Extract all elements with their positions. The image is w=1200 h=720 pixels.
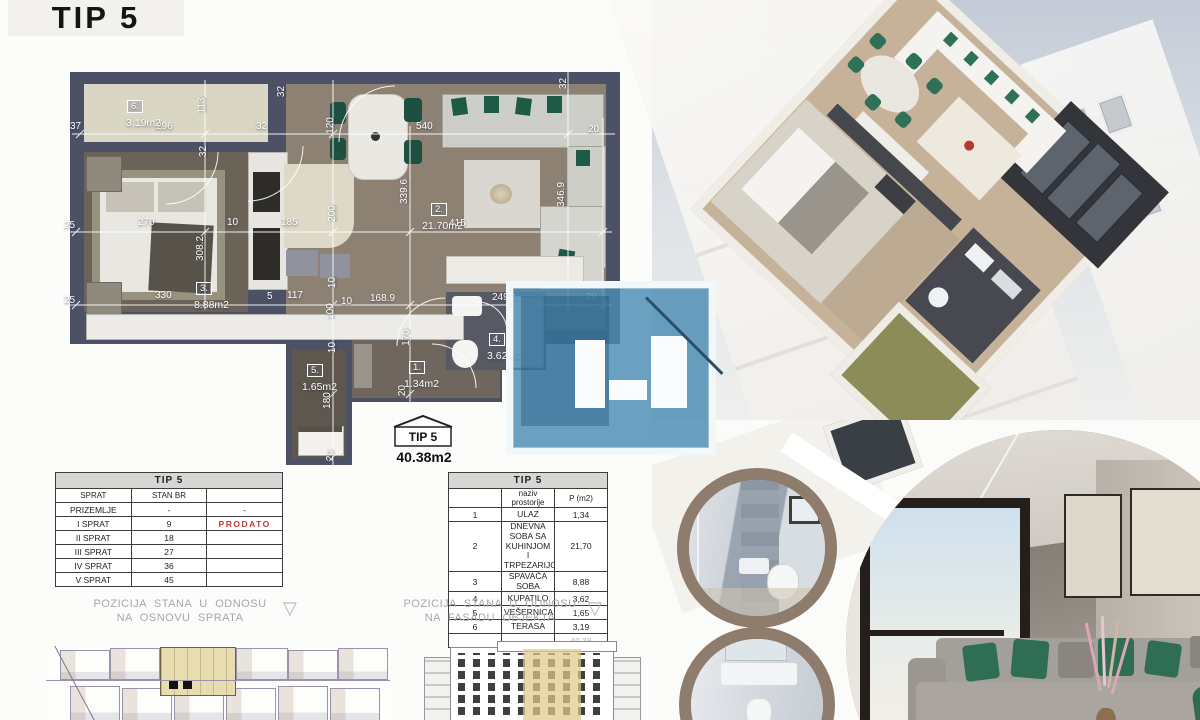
dim-label: 20	[325, 450, 336, 461]
dim-label: 32	[276, 86, 287, 97]
mirror	[725, 635, 787, 661]
page-title: TIP 5	[8, 0, 184, 36]
highlighted-unit	[160, 647, 236, 696]
availability-table: TIP 5 SPRAT STAN BR PRIZEMLJE-- I SPRAT9…	[55, 472, 283, 587]
dim-label: 10	[327, 277, 338, 288]
gray-pillow	[1058, 642, 1094, 678]
dim-label: 339.6	[399, 179, 410, 204]
dim-label: 185	[281, 217, 298, 228]
green-pillow	[1144, 640, 1182, 678]
dim-label: 10	[327, 342, 338, 353]
dim-label: 100	[325, 303, 336, 320]
sold-badge: PRODATO	[207, 517, 283, 531]
table-row: 3SPAVAĆA SOBA8,88	[449, 571, 608, 592]
dim-label: 200	[327, 205, 338, 222]
table-row: IV SPRAT36	[56, 559, 283, 573]
gray-pillow	[1190, 636, 1200, 668]
dim-label: 10	[341, 296, 352, 307]
room-area: 3.19m2	[126, 117, 161, 129]
dim-label: 168.9	[370, 293, 395, 304]
watermark-logo	[506, 281, 716, 455]
elevator	[183, 680, 192, 689]
caption-floor-position: POZICIJA STANA U ODNOSU NA OSNOVU SPRATA	[55, 597, 305, 626]
room-number: 5.	[307, 364, 323, 377]
dim-label: 270	[138, 217, 155, 228]
room-area: 21.70m2	[422, 220, 463, 232]
dim-label: 25	[64, 220, 75, 231]
table-row: 2DNEVNA SOBA SA KUHINJOM I TRPEZARIJOM21…	[449, 522, 608, 572]
table-row: V SPRAT45	[56, 573, 283, 587]
room-area: 1.65m2	[302, 381, 337, 393]
sofa-seat	[916, 682, 1200, 720]
washbasin-counter	[721, 663, 797, 685]
cistern	[739, 558, 769, 574]
wall-art-frame	[1064, 494, 1122, 598]
dim-label: 5	[267, 291, 273, 302]
page-title-text: TIP 5	[52, 0, 141, 36]
wall-art-frame	[1130, 488, 1200, 596]
dim-label: 20	[588, 124, 599, 135]
page: TIP 5	[0, 0, 1200, 720]
table-row: I SPRAT9PRODATO	[56, 517, 283, 531]
rooms-table-title: TIP 5	[449, 473, 608, 489]
dim-label: 32	[558, 78, 569, 89]
inset-window	[789, 496, 821, 524]
facade-elevation	[424, 647, 640, 720]
floor-overview-plan	[46, 646, 390, 720]
green-pillow	[962, 642, 1000, 682]
bathroom-inset-2	[679, 627, 835, 720]
dim-label: 346.9	[556, 182, 567, 207]
room-number: 2.	[431, 203, 447, 216]
dim-label: 120	[325, 117, 336, 134]
table-row: III SPRAT27	[56, 545, 283, 559]
dim-label: 180	[322, 392, 333, 409]
room-area: 8.88m2	[194, 299, 229, 311]
down-arrow-icon: ▽	[283, 598, 297, 619]
dim-label: 308.2	[195, 236, 206, 261]
dim-label: 10	[227, 217, 238, 228]
green-pillow	[1010, 639, 1049, 680]
facade-highlighted-column	[523, 649, 581, 720]
dim-label: 540	[416, 121, 433, 132]
dim-label: 330	[155, 290, 172, 301]
down-arrow-icon: ▽	[588, 598, 602, 619]
room-number: 4.	[489, 333, 505, 346]
room-number: 3.	[196, 282, 212, 295]
bathroom-inset-1	[677, 468, 837, 628]
dim-label: 32	[256, 121, 267, 132]
dim-label: 117	[287, 290, 303, 301]
elevator	[169, 680, 178, 689]
table-row: PRIZEMLJE--	[56, 503, 283, 517]
room-number: 6.	[127, 100, 143, 113]
table-row: 1ULAZ1,34	[449, 508, 608, 522]
dim-label: 32	[198, 146, 209, 157]
caption-facade-position: POZICIJA STANA U ODNOSU NA FASADU OBJEKT…	[365, 597, 615, 626]
availability-title: TIP 5	[56, 473, 283, 489]
room-number: 1.	[409, 361, 425, 374]
living-room-photo	[846, 430, 1200, 720]
dim-label: 25	[64, 295, 75, 306]
room-area: 1.34m2	[404, 378, 439, 390]
table-row: II SPRAT18	[56, 531, 283, 545]
dim-label: 113	[196, 98, 207, 114]
dim-label: 37	[70, 121, 81, 132]
interior-render-zone	[652, 420, 1200, 720]
dim-label: 170	[401, 329, 412, 346]
